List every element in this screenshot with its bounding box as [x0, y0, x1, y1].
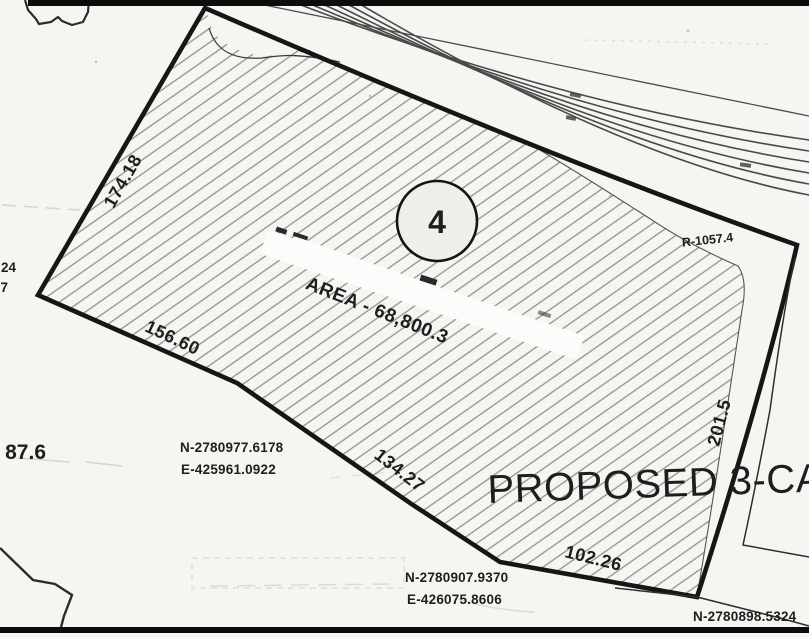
west-corner-northing: N-2780977.6178	[180, 440, 284, 455]
scan-edge-bar-top	[28, 0, 809, 6]
left-edge-fragment-2: 7	[0, 280, 8, 295]
left-edge-fragment-1: 24	[1, 260, 17, 275]
lot-number: 4	[428, 204, 446, 240]
west-corner-easting: E-425961.0922	[181, 462, 276, 477]
southeast-corner-northing: N-2780898.5324	[693, 609, 797, 624]
plat-canvas: 4 174.18 156.60 134.27 102.26 201.5 AREA…	[0, 0, 809, 633]
south-corner-easting: E-426075.8606	[407, 592, 502, 607]
left-edge-fragment-3: 87.6	[5, 441, 46, 464]
scan-edge-bar-bottom	[0, 627, 809, 633]
south-corner-northing: N-2780907.9370	[405, 570, 508, 585]
survey-map-drawing: 4 174.18 156.60 134.27 102.26 201.5 AREA…	[0, 0, 809, 633]
